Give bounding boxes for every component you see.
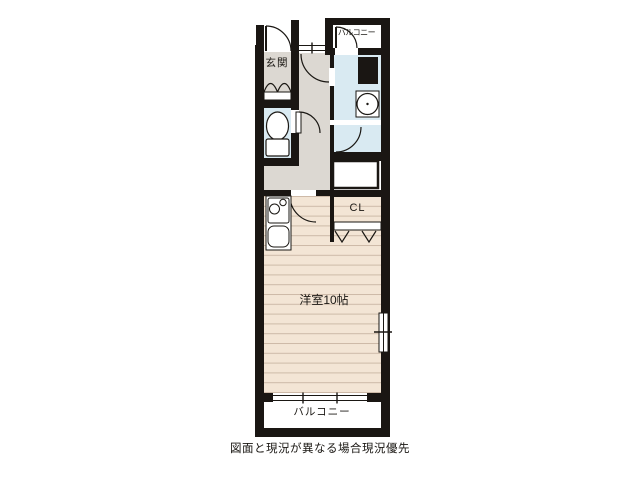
entrance-label: 玄関 [262,58,292,69]
wall-outer-bottom [255,428,390,437]
floorplan-canvas: 玄関 バルコニー CL 洋室10帖 バルコニー 図面と現況が異なる場合現況優先 [0,0,640,480]
bathtub [333,161,378,188]
window-south-backing [273,393,367,403]
entrance-step [264,92,291,100]
wall-toilet-hall [291,133,299,158]
wall-entrance-toilet [255,100,299,108]
entrance-door-arc [266,26,291,51]
wall-outer-right [381,18,390,437]
wall-south-window-left [264,393,273,402]
wall-washroom-left-upper [330,52,334,68]
closet-door-track [334,222,381,230]
toilet-tank [266,139,289,156]
wall-bathroom-tub [330,152,381,161]
balcony-south-label: バルコニー [266,407,378,418]
wall-room-top-left [255,190,291,196]
main-room-label: 洋室10帖 [282,294,366,306]
wall-entrance-recess-left [256,25,264,52]
wall-washroom-left-lower [330,86,334,120]
wall-south-window-right [367,393,381,402]
closet-label: CL [334,203,381,214]
washroom-doorway [329,68,335,86]
wall-toilet-bottom [255,158,299,166]
wall-balcony-north-bottom-right [358,48,381,55]
wall-tub-closet [330,190,381,197]
wall-balcony-north-top [325,18,385,25]
balcony-north-label: バルコニー [332,29,381,37]
hallway-floor-lower [264,166,299,190]
washing-machine-dot [366,103,368,105]
pipe-space [358,57,378,84]
toilet-door-leaf [296,112,301,133]
bathroom-floor [334,125,381,152]
toilet-bowl [267,112,289,140]
wall-entrance-recess-right [291,20,299,52]
hallway-floor [299,52,330,190]
footer-note: 図面と現況が異なる場合現況優先 [0,444,640,456]
